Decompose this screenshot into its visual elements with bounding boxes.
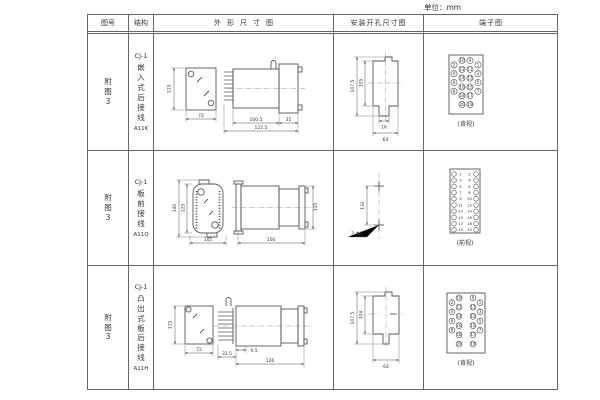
- terminal-number: 20: [459, 102, 465, 107]
- technical-drawing-page: 单位：mm 图号 结构 外形尺寸图 安装开孔尺寸图 端子图 附 图 3 CJ-1…: [0, 0, 600, 400]
- model-code: A11Q: [133, 232, 148, 238]
- terminal-number: 4: [468, 178, 471, 183]
- terminal-drawing-a11h: 2468101214161820911131517191357 (背视): [425, 266, 558, 389]
- terminal-circle: [451, 221, 456, 226]
- terminal-number: 17: [467, 93, 473, 98]
- front-view: 140 125 105: [172, 180, 226, 246]
- dim-label: 156: [267, 237, 276, 243]
- row3-structure-cell: CJ-1 凸 出 式 板 后 接 线 A11H: [129, 266, 154, 390]
- terminal-number: 8: [452, 89, 455, 94]
- terminal-circle: [451, 209, 456, 214]
- install-drawing-a11h: 107.5 104 64: [334, 266, 423, 389]
- terminal-drawing-a11q: 1357911131517192468101214161820 (前视): [425, 151, 558, 265]
- terminal-number: 10: [456, 295, 462, 300]
- terminal-number: 13: [458, 209, 463, 214]
- view-label: (背视): [457, 120, 474, 128]
- model-code: A11H: [134, 366, 149, 372]
- terminal-circle: [473, 197, 478, 202]
- terminal-grid: 2468101214161820911131517191357: [449, 295, 483, 347]
- terminal-number: 1: [476, 62, 479, 67]
- outline-drawing-a11k: 115 72 100.5: [154, 34, 333, 150]
- terminal-number: 11: [458, 202, 463, 207]
- screw-slot-marks: [197, 77, 209, 96]
- dim-label: 72: [196, 347, 202, 353]
- screw-hole: [198, 189, 204, 195]
- screw-slot-marks: [193, 314, 204, 333]
- screw-slot-marks: [204, 199, 213, 215]
- terminal-number: 13: [467, 76, 473, 81]
- dim-label: 126: [266, 358, 275, 364]
- terminal-number: 20: [456, 341, 462, 346]
- dim-label: 100.5: [250, 117, 263, 123]
- mounting-clip: [226, 298, 231, 307]
- row1-structure-cell: CJ-1 嵌 入 式 后 接 线 A11K: [129, 34, 154, 151]
- row2-fig-no-cell: 附 图 3: [88, 151, 129, 266]
- view-label: (背视): [457, 359, 474, 367]
- terminal-circle: [473, 178, 478, 183]
- terminal-number: 8: [468, 190, 471, 195]
- terminal-circle: [451, 178, 456, 183]
- terminal-grid: 2468101214161820911131517191357: [450, 57, 480, 107]
- dim-label: 72: [198, 113, 204, 119]
- dim-label: 132: [360, 201, 366, 210]
- terminal-number: 12: [456, 305, 462, 310]
- hole-callout: 2-Φ5: [351, 232, 363, 238]
- structure-name: 板 前 接 线: [137, 189, 145, 229]
- terminal-number: 18: [456, 332, 462, 337]
- dim-label: 64: [383, 364, 389, 370]
- terminal-number: 18: [459, 93, 465, 98]
- terminal-number: 14: [459, 76, 465, 81]
- dim-label: 31.5: [222, 351, 232, 357]
- terminal-number: 16: [459, 84, 465, 89]
- terminal-number: 4: [452, 71, 455, 76]
- model-code: A11K: [134, 126, 148, 132]
- terminal-number: 19: [467, 102, 473, 107]
- terminal-number: 11: [467, 67, 473, 72]
- row2-terminal-cell: 1357911131517192468101214161820 (前视): [424, 151, 558, 266]
- terminal-number: 12: [467, 202, 472, 207]
- terminal-number: 16: [456, 323, 462, 328]
- row1-terminal-cell: 2468101214161820911131517191357 (背视): [424, 34, 558, 151]
- terminal-number: 5: [478, 318, 481, 323]
- terminal-number: 13: [470, 314, 476, 319]
- mounting-clip: [271, 61, 276, 70]
- terminal-circle: [451, 184, 456, 189]
- structure-name: 凸 出 式 板 后 接 线: [137, 294, 145, 363]
- terminal-number: 12: [459, 67, 465, 72]
- dim-label: 107.5: [350, 311, 356, 324]
- terminal-number: 7: [476, 89, 479, 94]
- terminal-number: 9: [459, 196, 462, 201]
- dim-label: 140: [172, 204, 178, 213]
- terminal-number: 19: [458, 227, 463, 232]
- header-terminal: 端子图: [424, 15, 558, 34]
- screw-hole: [208, 100, 214, 106]
- terminal-circle: [473, 228, 478, 233]
- fig-no-label: 附 图 3: [104, 77, 112, 107]
- terminal-circle: [473, 209, 478, 214]
- terminal-number: 10: [467, 196, 472, 201]
- terminal-number: 2: [450, 300, 453, 305]
- terminal-number: 2: [468, 171, 471, 176]
- terminal-number: 19: [470, 341, 476, 346]
- terminal-circle: [473, 190, 478, 195]
- terminal-number: 3: [459, 178, 462, 183]
- terminal-circle: [473, 215, 478, 220]
- drawing-table: 图号 结构 外形尺寸图 安装开孔尺寸图 端子图 附 图 3 CJ-1 嵌 入 式…: [87, 14, 558, 390]
- outline-drawing-a11h: 115 72 9.5: [154, 266, 333, 389]
- outline-drawing-a11q: 140 125 105: [154, 151, 333, 265]
- terminal-number: 11: [470, 305, 476, 310]
- terminal-grid: 1357911131517192468101214161820: [451, 171, 478, 232]
- dim-label: 105: [204, 237, 213, 243]
- screw-hole: [186, 307, 191, 312]
- unit-label: 单位：mm: [424, 2, 461, 13]
- dim-label: 115: [168, 321, 174, 330]
- terminal-number: 18: [467, 221, 472, 226]
- dim-label: 115: [313, 203, 319, 212]
- terminal-number: 4: [450, 309, 453, 314]
- terminal-number: 6: [452, 80, 455, 85]
- row1-fig-no-cell: 附 图 3: [88, 34, 129, 151]
- terminal-number: 6: [450, 318, 453, 323]
- terminal-number: 5: [476, 80, 479, 85]
- terminal-circle: [451, 190, 456, 195]
- row3-terminal-cell: 2468101214161820911131517191357 (背视): [424, 266, 558, 390]
- terminal-number: 2: [452, 62, 455, 67]
- model-label: CJ-1: [135, 178, 148, 186]
- row3-outline-cell: 115 72 9.5: [154, 266, 334, 390]
- header-install: 安装开孔尺寸图: [334, 15, 424, 34]
- header-structure: 结构: [129, 15, 154, 34]
- terminal-drawing-a11k: 2468101214161820911131517191357 (背视): [425, 34, 558, 150]
- dim-label: 104: [359, 311, 365, 320]
- model-label: CJ-1: [135, 52, 148, 60]
- terminal-number: 16: [467, 215, 472, 220]
- terminal-number: 3: [478, 309, 481, 314]
- row2-outline-cell: 140 125 105: [154, 151, 334, 266]
- screw-hole: [207, 338, 212, 343]
- row1-install-cell: 107.5 105 16 64: [334, 34, 424, 151]
- terminal-number: 17: [458, 221, 463, 226]
- dim-label: 107.5: [350, 79, 356, 92]
- terminal-circle: [451, 215, 456, 220]
- header-outline: 外形尺寸图: [154, 15, 334, 34]
- terminal-number: 6: [468, 184, 471, 189]
- dim-label: 115: [167, 85, 173, 94]
- view-label: (前视): [456, 239, 473, 247]
- terminal-number: 15: [467, 84, 473, 89]
- terminal-circle: [473, 172, 478, 177]
- dim-label: 35: [286, 117, 292, 123]
- side-view: 100.5 35 122.5: [224, 61, 306, 135]
- dim-label: 16: [381, 125, 387, 131]
- dim-label: 64: [383, 137, 389, 143]
- terminal-number: 9: [468, 58, 471, 63]
- screw-hole: [212, 222, 218, 228]
- row3-fig-no-cell: 附 图 3: [88, 266, 129, 390]
- terminal-number: 7: [459, 190, 462, 195]
- screw-hole: [188, 71, 194, 77]
- terminal-circle: [473, 203, 478, 208]
- terminal-circle: [451, 228, 456, 233]
- terminal-pins: [224, 72, 233, 100]
- row2-structure-cell: CJ-1 板 前 接 线 A11Q: [129, 151, 154, 266]
- dim-label: 125: [181, 204, 187, 213]
- terminal-circle: [451, 172, 456, 177]
- dim-label: 122.5: [255, 125, 268, 131]
- dim-label: 105: [359, 79, 365, 88]
- front-view: 115 72: [167, 68, 217, 122]
- terminal-number: 14: [456, 314, 462, 319]
- terminal-number: 3: [476, 71, 479, 76]
- terminal-circle: [473, 221, 478, 226]
- terminal-number: 9: [471, 295, 474, 300]
- fig-no-label: 附 图 3: [104, 193, 112, 223]
- terminal-number: 15: [458, 215, 463, 220]
- terminal-number: 1: [459, 171, 462, 176]
- front-view: 115 72: [168, 306, 214, 356]
- fig-no-label: 附 图 3: [104, 313, 112, 343]
- side-view: 9.5 31.5 126: [214, 298, 312, 368]
- install-drawing-a11k: 107.5 105 16 64: [334, 34, 423, 150]
- terminal-number: 17: [470, 332, 476, 337]
- model-label: CJ-1: [135, 283, 148, 291]
- install-drawing-a11q: 132 2-Φ5: [334, 151, 423, 265]
- header-fig-no: 图号: [88, 15, 129, 34]
- terminal-number: 1: [478, 300, 481, 305]
- terminal-number: 5: [459, 184, 462, 189]
- terminal-number: 7: [478, 328, 481, 333]
- row1-outline-cell: 115 72 100.5: [154, 34, 334, 151]
- row3-install-cell: 107.5 104 64: [334, 266, 424, 390]
- terminal-number: 20: [467, 227, 472, 232]
- row2-install-cell: 132 2-Φ5: [334, 151, 424, 266]
- terminal-circle: [451, 197, 456, 202]
- terminal-number: 8: [450, 328, 453, 333]
- side-view: 156 115: [232, 181, 319, 246]
- dim-label: 9.5: [250, 348, 257, 354]
- terminal-circle: [473, 184, 478, 189]
- terminal-number: 15: [470, 323, 476, 328]
- terminal-number: 10: [459, 58, 465, 63]
- structure-name: 嵌 入 式 后 接 线: [137, 63, 145, 122]
- terminal-number: 14: [467, 209, 472, 214]
- terminal-circle: [451, 203, 456, 208]
